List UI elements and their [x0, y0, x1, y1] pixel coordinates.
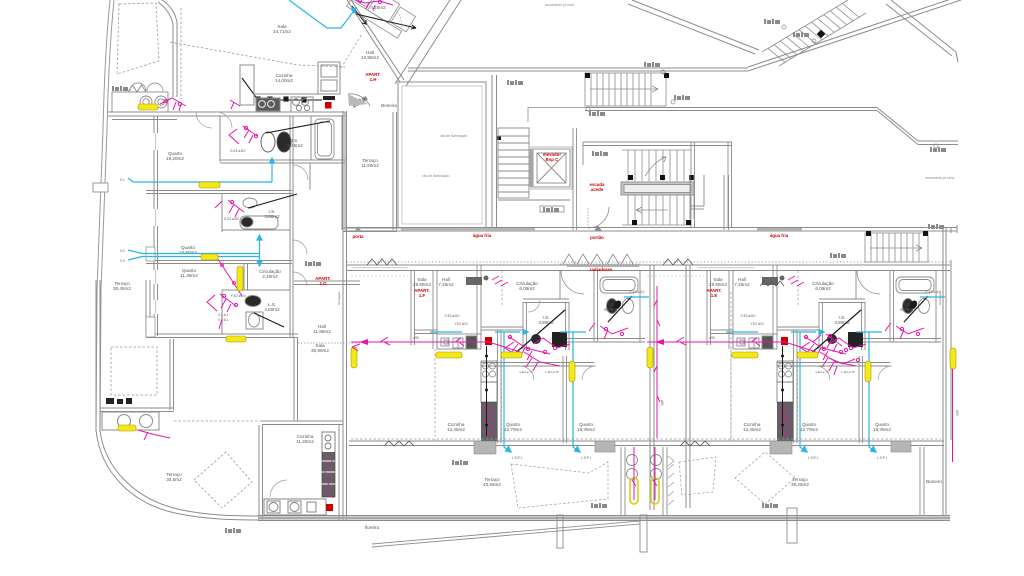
svg-text:água fria: água fria [770, 233, 789, 238]
svg-text:1.O: 1.O [319, 281, 327, 286]
svg-text:V-1: V-1 [120, 178, 125, 182]
svg-text:V-3: V-3 [120, 259, 125, 263]
svg-text:11,85m2: 11,85m2 [313, 329, 331, 334]
svg-text:V-1 ø.1: V-1 ø.1 [218, 313, 229, 317]
svg-text:Bsp C: Bsp C [546, 157, 560, 162]
svg-text:V-2: V-2 [120, 249, 125, 253]
svg-text:arruamento já exist.: arruamento já exist. [545, 3, 575, 7]
svg-text:14,50m2: 14,50m2 [179, 250, 197, 255]
svg-text:L-E2 ø.75: L-E2 ø.75 [545, 370, 559, 374]
svg-text:porta: porta [353, 234, 365, 239]
svg-text:12,70m2: 12,70m2 [504, 427, 522, 432]
svg-text:7,45m2: 7,45m2 [438, 282, 454, 287]
svg-text:40,55m2: 40,55m2 [483, 482, 501, 487]
svg-text:água fria: água fria [473, 233, 492, 238]
svg-text:3,80m2: 3,80m2 [538, 320, 554, 325]
svg-text:19,20m2: 19,20m2 [166, 156, 184, 161]
svg-text:D-E2 ø110: D-E2 ø110 [224, 217, 239, 221]
svg-text:vão de iluminação: vão de iluminação [440, 134, 467, 138]
svg-text:ø50: ø50 [955, 410, 959, 416]
svg-text:radiadores: radiadores [590, 267, 613, 272]
svg-text:1.F: 1.F [419, 293, 426, 298]
svg-text:F-E2 ø110: F-E2 ø110 [445, 314, 460, 318]
svg-text:V-E2 ø.75: V-E2 ø.75 [519, 370, 533, 374]
svg-text:Boneiro: Boneiro [926, 479, 942, 484]
svg-text:Y-E2 ø10: Y-E2 ø10 [454, 322, 467, 326]
svg-text:Boneira: Boneira [381, 103, 397, 108]
svg-text:10,95m2: 10,95m2 [361, 55, 379, 60]
svg-text:L.S.P.1: L.S.P.1 [581, 456, 591, 460]
svg-text:2,40m2: 2,40m2 [262, 274, 278, 279]
svg-text:12,45m2: 12,45m2 [447, 427, 465, 432]
svg-text:arruamento já exist.: arruamento já exist. [925, 176, 955, 180]
svg-text:5,25m2: 5,25m2 [604, 307, 620, 312]
svg-text:38,25m2: 38,25m2 [791, 482, 809, 487]
svg-text:34,5m2: 34,5m2 [166, 477, 182, 482]
svg-text:vão de iluminação: vão de iluminação [422, 174, 449, 178]
svg-text:11,35m2: 11,35m2 [180, 273, 198, 278]
svg-text:5,45m2: 5,45m2 [287, 143, 303, 148]
svg-text:circulação: circulação [337, 291, 341, 305]
svg-text:4,50m2: 4,50m2 [264, 307, 280, 312]
svg-text:30,45m2: 30,45m2 [113, 286, 131, 291]
svg-text:V-2 ø.1: V-2 ø.1 [218, 318, 229, 322]
svg-text:ø90: ø90 [660, 400, 664, 406]
svg-text:3,60m2: 3,60m2 [264, 214, 280, 219]
svg-text:1.E: 1.E [711, 293, 718, 298]
svg-text:1.H: 1.H [370, 77, 377, 82]
svg-text:portão: portão [590, 235, 604, 240]
svg-text:acede: acede [591, 187, 604, 192]
svg-text:ø90: ø90 [413, 336, 419, 340]
svg-text:4,20m2: 4,20m2 [370, 5, 386, 10]
svg-text:F-E1 ø110: F-E1 ø110 [630, 290, 645, 294]
svg-text:11,20m2: 11,20m2 [296, 439, 314, 444]
svg-text:11,50m2: 11,50m2 [361, 163, 379, 168]
svg-text:floreira: floreira [365, 525, 379, 530]
svg-text:14,00m2: 14,00m2 [275, 78, 293, 83]
svg-text:G-E4 ø110: G-E4 ø110 [230, 149, 246, 153]
svg-text:6,05m2: 6,05m2 [519, 286, 535, 291]
svg-text:29,95m2: 29,95m2 [413, 282, 431, 287]
svg-text:30,90m2: 30,90m2 [311, 348, 329, 353]
svg-text:F-E2 ø110: F-E2 ø110 [231, 294, 246, 298]
svg-text:18,35m2: 18,35m2 [577, 427, 595, 432]
svg-text:24,71m2: 24,71m2 [273, 29, 291, 34]
svg-text:L.S.P.1: L.S.P.1 [512, 456, 522, 460]
